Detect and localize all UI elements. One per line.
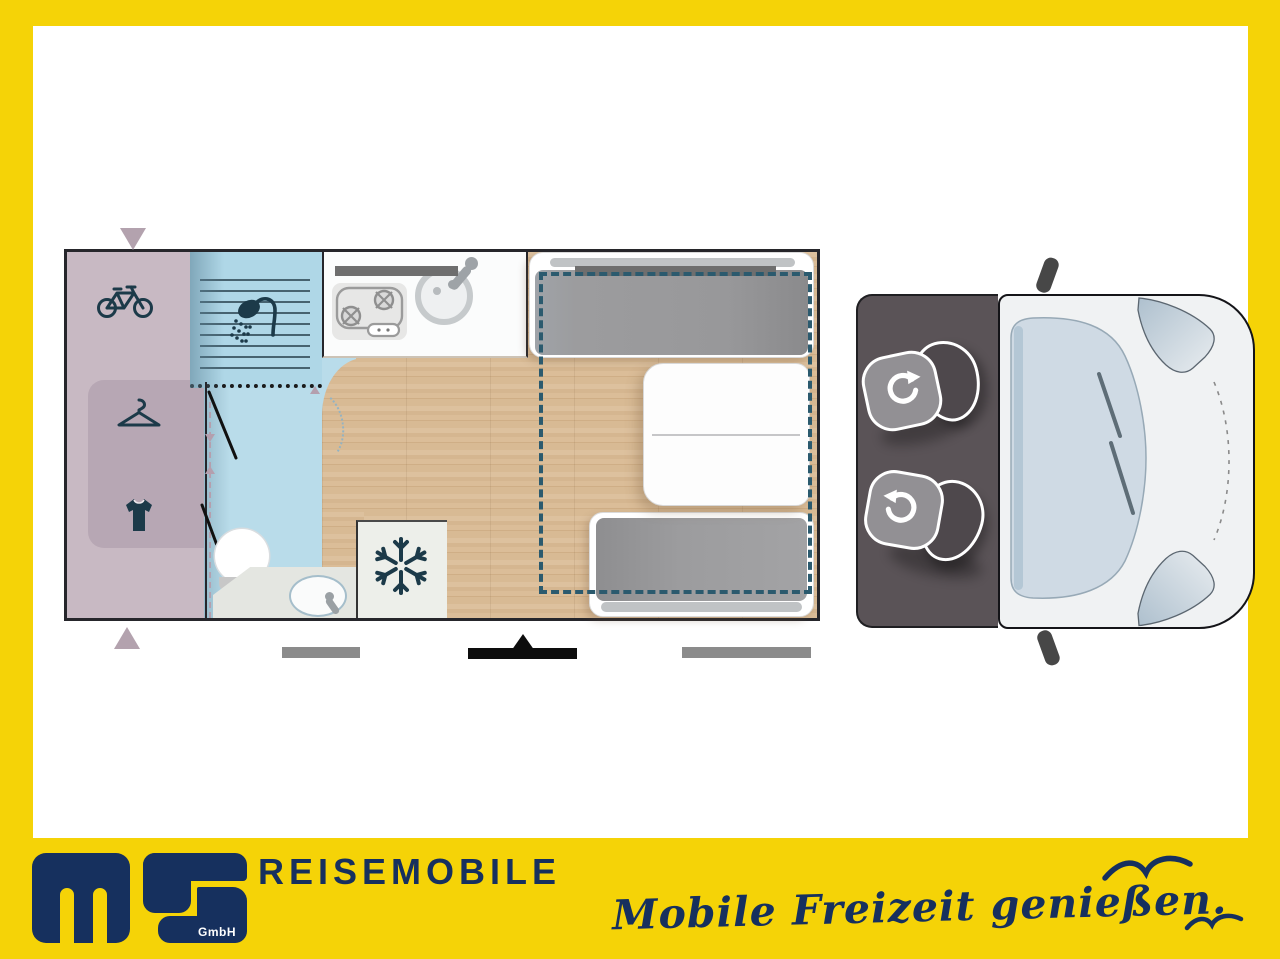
sink-drain — [433, 287, 441, 295]
reisemobile-wordmark: REISEMOBILE — [258, 851, 561, 893]
drop-down-bed-outline — [539, 272, 812, 594]
bench-backrest — [601, 602, 802, 612]
stove-icon — [332, 283, 407, 340]
logo-m — [32, 853, 130, 943]
windshield-edge — [1014, 326, 1023, 590]
hood-line — [1214, 382, 1229, 540]
seagull-icon — [1183, 908, 1245, 938]
headlight — [1138, 551, 1214, 625]
roof-vent-bar — [335, 266, 458, 276]
van-front-details — [983, 252, 1280, 672]
garage-door-arrow-icon — [114, 627, 140, 649]
marketing-image: GmbH REISEMOBILE Mobile Freizeit genieße… — [0, 0, 1280, 959]
kitchen-tap-knob — [465, 257, 478, 270]
seagull-icon — [1100, 848, 1195, 890]
windshield — [1011, 318, 1146, 598]
driver-cab — [856, 294, 998, 628]
snowflake-icon — [368, 535, 434, 597]
mirror-icon — [1035, 628, 1061, 667]
tagline-script: Mobile Freizeit genießen. — [611, 877, 1172, 940]
shower-shadow — [190, 252, 224, 388]
service-hatch-bar — [682, 647, 811, 658]
mirror-icon — [1034, 256, 1060, 295]
door-arrow-icon — [205, 434, 215, 442]
white-canvas — [33, 26, 1248, 838]
door-arrow-icon — [205, 466, 215, 474]
shower-icon — [228, 294, 288, 350]
bicycle-icon — [96, 282, 154, 319]
logo-m-slot — [60, 888, 74, 943]
service-hatch-bar — [282, 647, 360, 658]
rotation-arrow-icon — [881, 486, 925, 530]
door-arrow-icon — [310, 386, 320, 394]
entrance-arrow-icon — [509, 634, 537, 654]
awning-arrow-icon — [120, 228, 146, 250]
shower-tray — [190, 252, 322, 388]
tshirt-icon — [118, 497, 160, 533]
floorplan-interior — [64, 249, 820, 621]
hanger-icon — [116, 396, 162, 428]
logo-s — [143, 853, 191, 913]
logo-m-slot — [93, 888, 107, 943]
headlight — [1138, 298, 1214, 372]
rotation-arrow-icon — [879, 367, 923, 411]
logo-gmbh-label: GmbH — [198, 925, 246, 939]
